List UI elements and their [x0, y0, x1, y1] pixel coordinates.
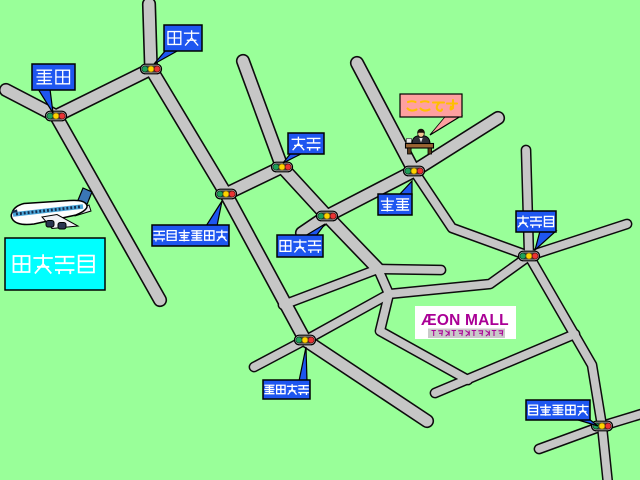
svg-text:ÆON MALL: ÆON MALL [421, 312, 509, 329]
